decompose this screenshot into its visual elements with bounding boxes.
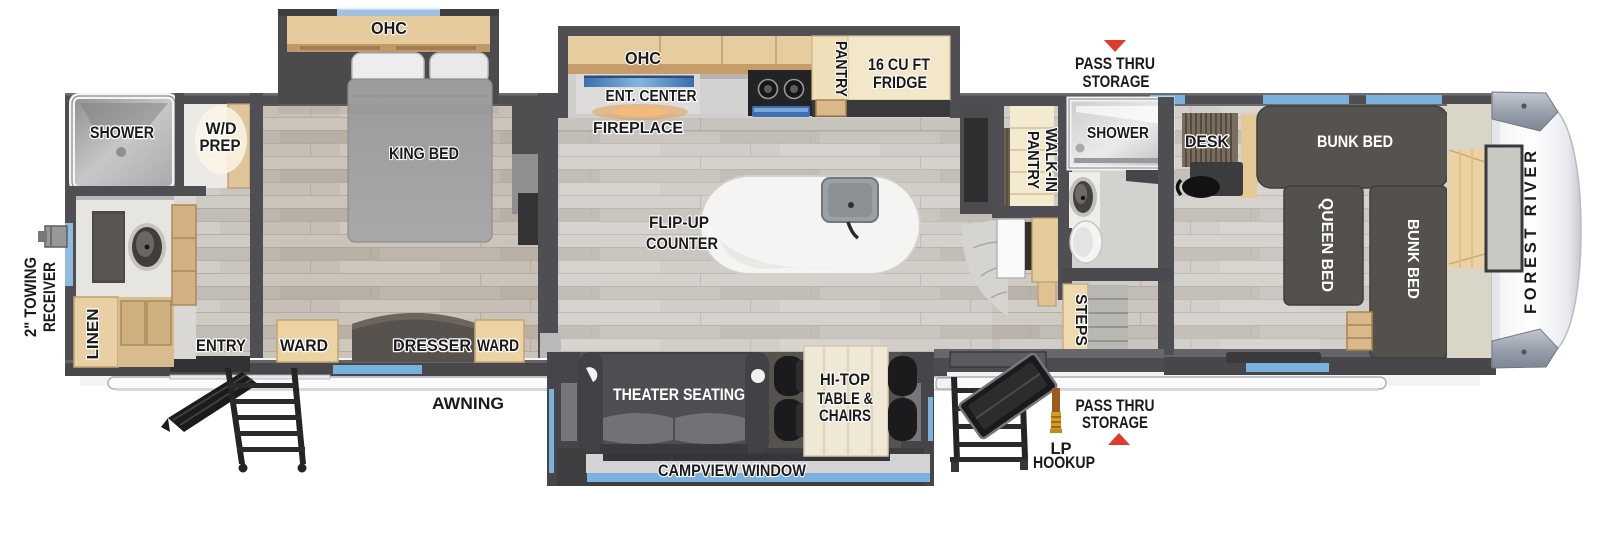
svg-text:WARD: WARD	[477, 337, 519, 355]
svg-text:FOREST RIVER: FOREST RIVER	[1522, 150, 1540, 314]
svg-text:COUNTER: COUNTER	[646, 234, 718, 253]
svg-text:SHOWER: SHOWER	[90, 124, 154, 142]
svg-text:PREP: PREP	[200, 137, 241, 155]
svg-text:OHC: OHC	[371, 18, 407, 38]
svg-text:PASS THRU: PASS THRU	[1075, 55, 1155, 73]
svg-text:STORAGE: STORAGE	[1083, 73, 1150, 91]
svg-text:QUEEN BED: QUEEN BED	[1318, 198, 1335, 292]
svg-text:W/D: W/D	[206, 120, 237, 138]
svg-text:TABLE &: TABLE &	[817, 390, 873, 408]
svg-text:OHC: OHC	[625, 48, 661, 68]
svg-text:PASS THRU: PASS THRU	[1076, 397, 1155, 415]
svg-text:HI-TOP: HI-TOP	[820, 371, 870, 389]
svg-text:FLIP-UP: FLIP-UP	[649, 213, 709, 232]
svg-text:DESK: DESK	[1185, 133, 1229, 151]
svg-text:KING BED: KING BED	[389, 145, 459, 163]
svg-text:WARD: WARD	[280, 337, 328, 355]
svg-text:FRIDGE: FRIDGE	[873, 74, 927, 92]
svg-text:CAMPVIEW WINDOW: CAMPVIEW WINDOW	[658, 462, 806, 480]
svg-text:DRESSER: DRESSER	[393, 337, 471, 355]
svg-text:2" TOWING: 2" TOWING	[21, 257, 40, 337]
svg-text:STORAGE: STORAGE	[1082, 414, 1148, 432]
svg-text:PANTRY: PANTRY	[832, 41, 849, 97]
svg-text:ENTRY: ENTRY	[196, 336, 247, 355]
svg-text:RECEIVER: RECEIVER	[40, 262, 59, 332]
svg-text:STEPS: STEPS	[1072, 294, 1089, 346]
svg-text:ENT. CENTER: ENT. CENTER	[606, 88, 697, 105]
svg-text:BUNK BED: BUNK BED	[1404, 219, 1421, 299]
svg-text:LINEN: LINEN	[85, 309, 102, 360]
svg-text:BUNK BED: BUNK BED	[1317, 133, 1393, 151]
svg-text:FIREPLACE: FIREPLACE	[593, 120, 683, 137]
svg-text:SHOWER: SHOWER	[1087, 125, 1149, 142]
svg-text:HOOKUP: HOOKUP	[1033, 454, 1095, 472]
svg-text:16 CU FT: 16 CU FT	[868, 56, 930, 74]
svg-text:CHAIRS: CHAIRS	[819, 407, 871, 425]
svg-text:AWNING: AWNING	[432, 395, 504, 413]
svg-text:WALK-IN: WALK-IN	[1042, 128, 1059, 192]
svg-text:PANTRY: PANTRY	[1024, 131, 1041, 190]
svg-text:THEATER SEATING: THEATER SEATING	[613, 386, 745, 404]
